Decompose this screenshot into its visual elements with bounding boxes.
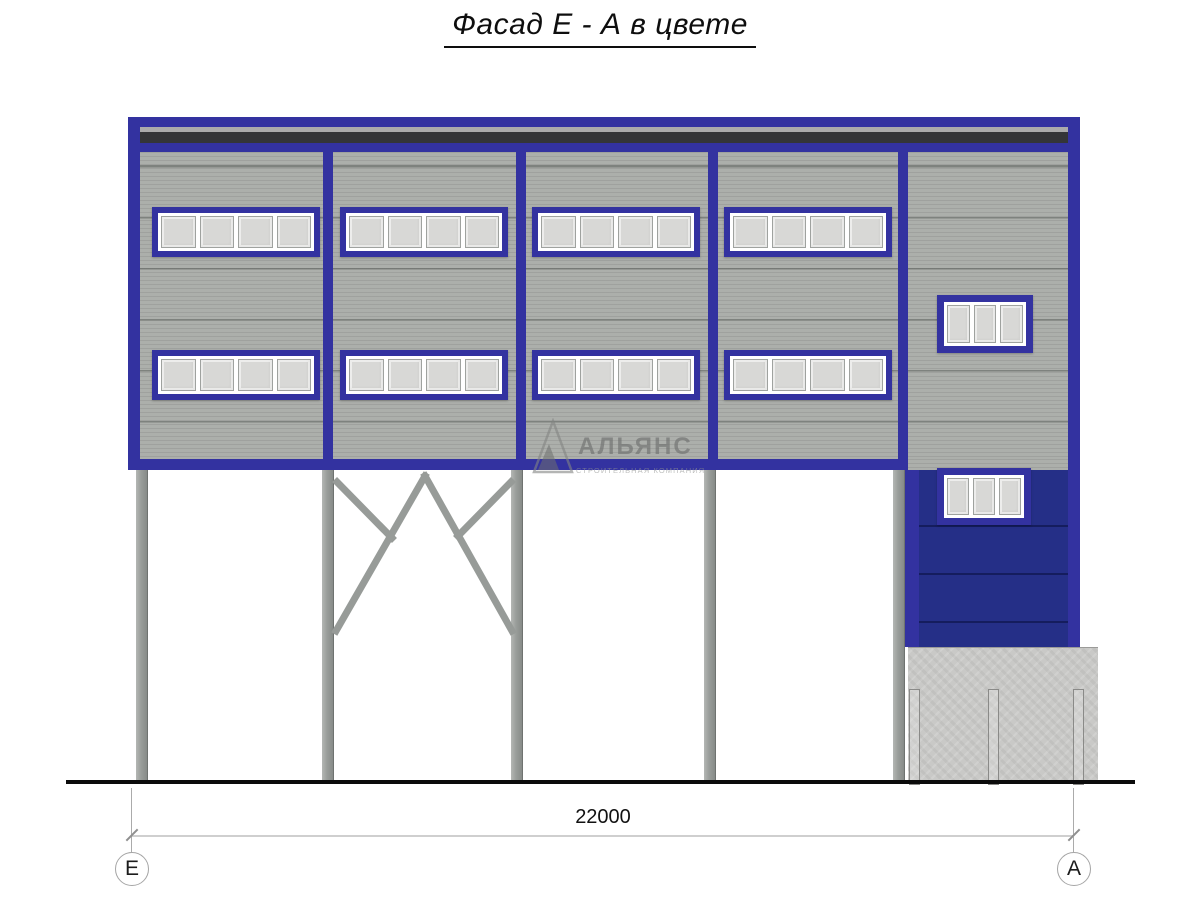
steel-column-5 — [893, 470, 905, 782]
watermark-company-subtitle: СТРОИТЕЛЬНАЯ КОМПАНИЯ — [576, 466, 705, 475]
extension-line-right — [1073, 788, 1074, 852]
steel-column-4 — [704, 470, 716, 782]
roof-parapet-band — [128, 117, 1078, 152]
extension-line-left — [131, 788, 132, 852]
foundation-post — [909, 689, 920, 785]
panel-joint — [919, 525, 1068, 527]
ribbon-window — [724, 350, 892, 400]
foundation-post — [988, 689, 999, 785]
concrete-foundation — [908, 647, 1098, 782]
cross-bracing — [320, 470, 530, 640]
panel-joint — [919, 621, 1068, 623]
foundation-post — [1073, 689, 1084, 785]
facade-wall — [128, 152, 1078, 459]
small-window-lower — [937, 468, 1031, 525]
ribbon-window — [340, 350, 508, 400]
drawing-title: Фасад Е - А в цвете — [444, 8, 756, 48]
facade-mullion-3 — [708, 152, 718, 470]
facade-mullion-2 — [516, 152, 526, 470]
ribbon-window — [152, 350, 320, 400]
dimension-label: 22000 — [503, 806, 703, 829]
ribbon-window — [340, 207, 508, 257]
steel-column-1 — [136, 470, 148, 782]
facade-corner-trim-left — [128, 117, 140, 470]
axis-marker-E: Е — [115, 852, 149, 886]
watermark-logo-icon — [528, 418, 578, 476]
ribbon-window — [152, 207, 320, 257]
axis-marker-A: А — [1057, 852, 1091, 886]
ground-line — [66, 780, 1135, 784]
drawing-title-wrap: Фасад Е - А в цвете — [0, 8, 1200, 48]
small-window-upper — [937, 295, 1033, 353]
dimension-line — [132, 835, 1074, 837]
ribbon-window — [532, 350, 700, 400]
roof-flashing-dark-strip — [134, 132, 1072, 143]
panel-joint — [919, 573, 1068, 575]
ribbon-window — [532, 207, 700, 257]
ribbon-window — [724, 207, 892, 257]
facade-corner-trim-right — [1068, 117, 1080, 470]
watermark-company-name: АЛЬЯНС — [578, 433, 693, 461]
facade-mullion-1 — [323, 152, 333, 470]
facade-mullion-4 — [898, 152, 908, 470]
